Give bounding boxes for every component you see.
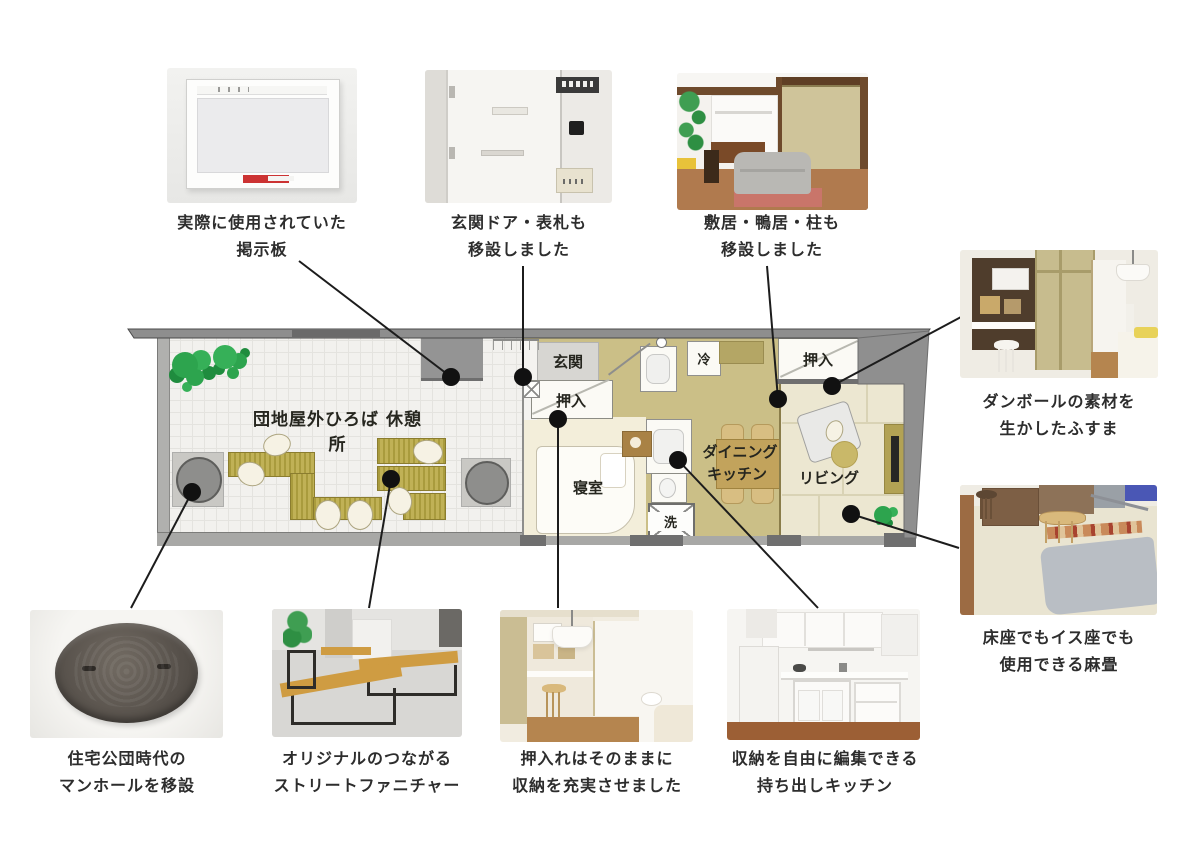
- connector-dot: [823, 377, 841, 395]
- oshiire-storage-photo: [500, 610, 693, 742]
- tan-wall-left: [500, 615, 527, 723]
- white-bin: [822, 690, 843, 721]
- closet-shelf-box: [992, 268, 1030, 290]
- hanging-plant: [677, 89, 708, 152]
- jar-icon: [839, 663, 847, 672]
- connector-line: [131, 492, 192, 608]
- small-table-wood: [321, 647, 370, 655]
- top-lintel: [500, 610, 639, 617]
- right-wall: [858, 331, 929, 538]
- sofa-cushion-line: [740, 169, 805, 172]
- yellow-pillow: [1134, 327, 1158, 339]
- side-stool-legs: [980, 498, 994, 519]
- connector-dot: [842, 505, 860, 523]
- hallway-white: [593, 621, 641, 716]
- bulletin-board-surface: [197, 98, 328, 173]
- wall-shelf-rail: [808, 648, 874, 651]
- door-panel: [446, 70, 562, 203]
- nameplate-text: [562, 81, 594, 86]
- bench-frame: [291, 688, 396, 724]
- pendant-cord: [1132, 250, 1134, 265]
- wood-post: [960, 495, 974, 615]
- bedding: [654, 705, 693, 742]
- desk-counter: [527, 671, 593, 678]
- cardboard-fusuma-photo: [960, 250, 1158, 378]
- closet-shelf-box: [533, 644, 554, 659]
- connector-dot: [769, 390, 787, 408]
- bulletin-board-pins: [218, 87, 248, 92]
- manhole-photo: [30, 610, 223, 738]
- roof-band-dark-segment: [292, 330, 380, 337]
- door-hinge: [449, 86, 455, 98]
- notice-red-label-text: [268, 176, 295, 181]
- dark-doorway: [439, 609, 462, 647]
- connector-dot: [549, 410, 567, 428]
- manhole-texture: [72, 636, 180, 708]
- door-mail-slot: [481, 150, 524, 157]
- lintel-pillar-photo: [677, 73, 868, 210]
- intercom-buttons: [563, 179, 584, 184]
- cabinet-divider: [843, 612, 845, 646]
- roof-band: [128, 329, 930, 338]
- entrance-door-photo: [425, 70, 612, 203]
- connector-dot: [669, 451, 687, 469]
- connector-line: [678, 460, 818, 608]
- fusuma-top-rail: [1035, 270, 1090, 273]
- white-bin: [798, 690, 819, 721]
- cabinet-brown: [1039, 485, 1094, 514]
- closet-counter: [972, 322, 1035, 330]
- sofa-gray: [734, 152, 810, 193]
- cart-shelf-line: [854, 701, 896, 704]
- wood-floor: [527, 717, 639, 742]
- connector-dot: [382, 470, 400, 488]
- closet-shelf-box: [558, 647, 575, 659]
- connector-dot: [514, 368, 532, 386]
- door-window-slit: [492, 107, 528, 114]
- blue-object: [1125, 485, 1157, 501]
- right-cabinet: [881, 614, 918, 655]
- upper-cabinets: [762, 612, 884, 648]
- hemp-tatami-photo: [960, 485, 1157, 615]
- wood-floor: [727, 722, 920, 740]
- dining-chair-photo: [704, 150, 719, 183]
- stool-legs: [998, 349, 1016, 372]
- doorbell-icon: [569, 121, 584, 136]
- pendant-shade: [1116, 264, 1150, 281]
- shelf-line: [715, 111, 772, 114]
- fusuma-frame-line: [1059, 250, 1062, 370]
- connector-line: [369, 479, 391, 608]
- closet-shelf-box: [980, 296, 1000, 314]
- fridge-white: [739, 646, 780, 724]
- connector-dot: [183, 483, 201, 501]
- range-hood: [746, 609, 777, 638]
- bulletin-board-photo: [167, 68, 357, 203]
- wall-left: [425, 70, 446, 203]
- kettle-icon: [793, 664, 807, 672]
- bulletin-board-top-strip: [197, 86, 326, 95]
- chair-frame: [287, 650, 316, 689]
- connector-dot: [442, 368, 460, 386]
- fusuma-panels: [1035, 250, 1094, 370]
- plant-green: [283, 609, 312, 650]
- wood-beam: [776, 77, 868, 85]
- pendant-shade: [552, 626, 593, 648]
- portable-kitchen-photo: [727, 609, 920, 740]
- wood-stool-legs: [1045, 521, 1078, 543]
- side-table: [641, 692, 662, 706]
- door-hinge: [449, 147, 455, 159]
- connector-line: [299, 261, 451, 377]
- bed-white: [1118, 332, 1158, 378]
- closet-shelf-box: [1004, 299, 1022, 314]
- pendant-cord: [571, 610, 573, 627]
- gray-mattress: [1040, 536, 1157, 615]
- street-furniture-photo: [272, 609, 462, 737]
- cabinet-divider: [804, 612, 806, 646]
